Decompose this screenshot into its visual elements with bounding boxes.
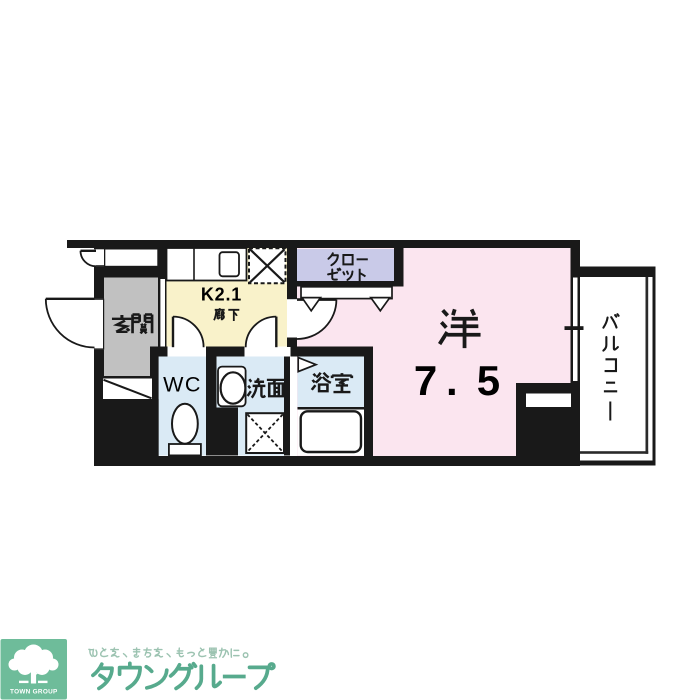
- svg-text:K2.1: K2.1: [201, 284, 242, 304]
- svg-text:TOWN GROUP: TOWN GROUP: [10, 689, 58, 696]
- svg-text:.: .: [446, 357, 458, 404]
- svg-text:7: 7: [414, 357, 437, 404]
- svg-text:WC: WC: [163, 372, 202, 396]
- svg-text:5: 5: [477, 357, 500, 404]
